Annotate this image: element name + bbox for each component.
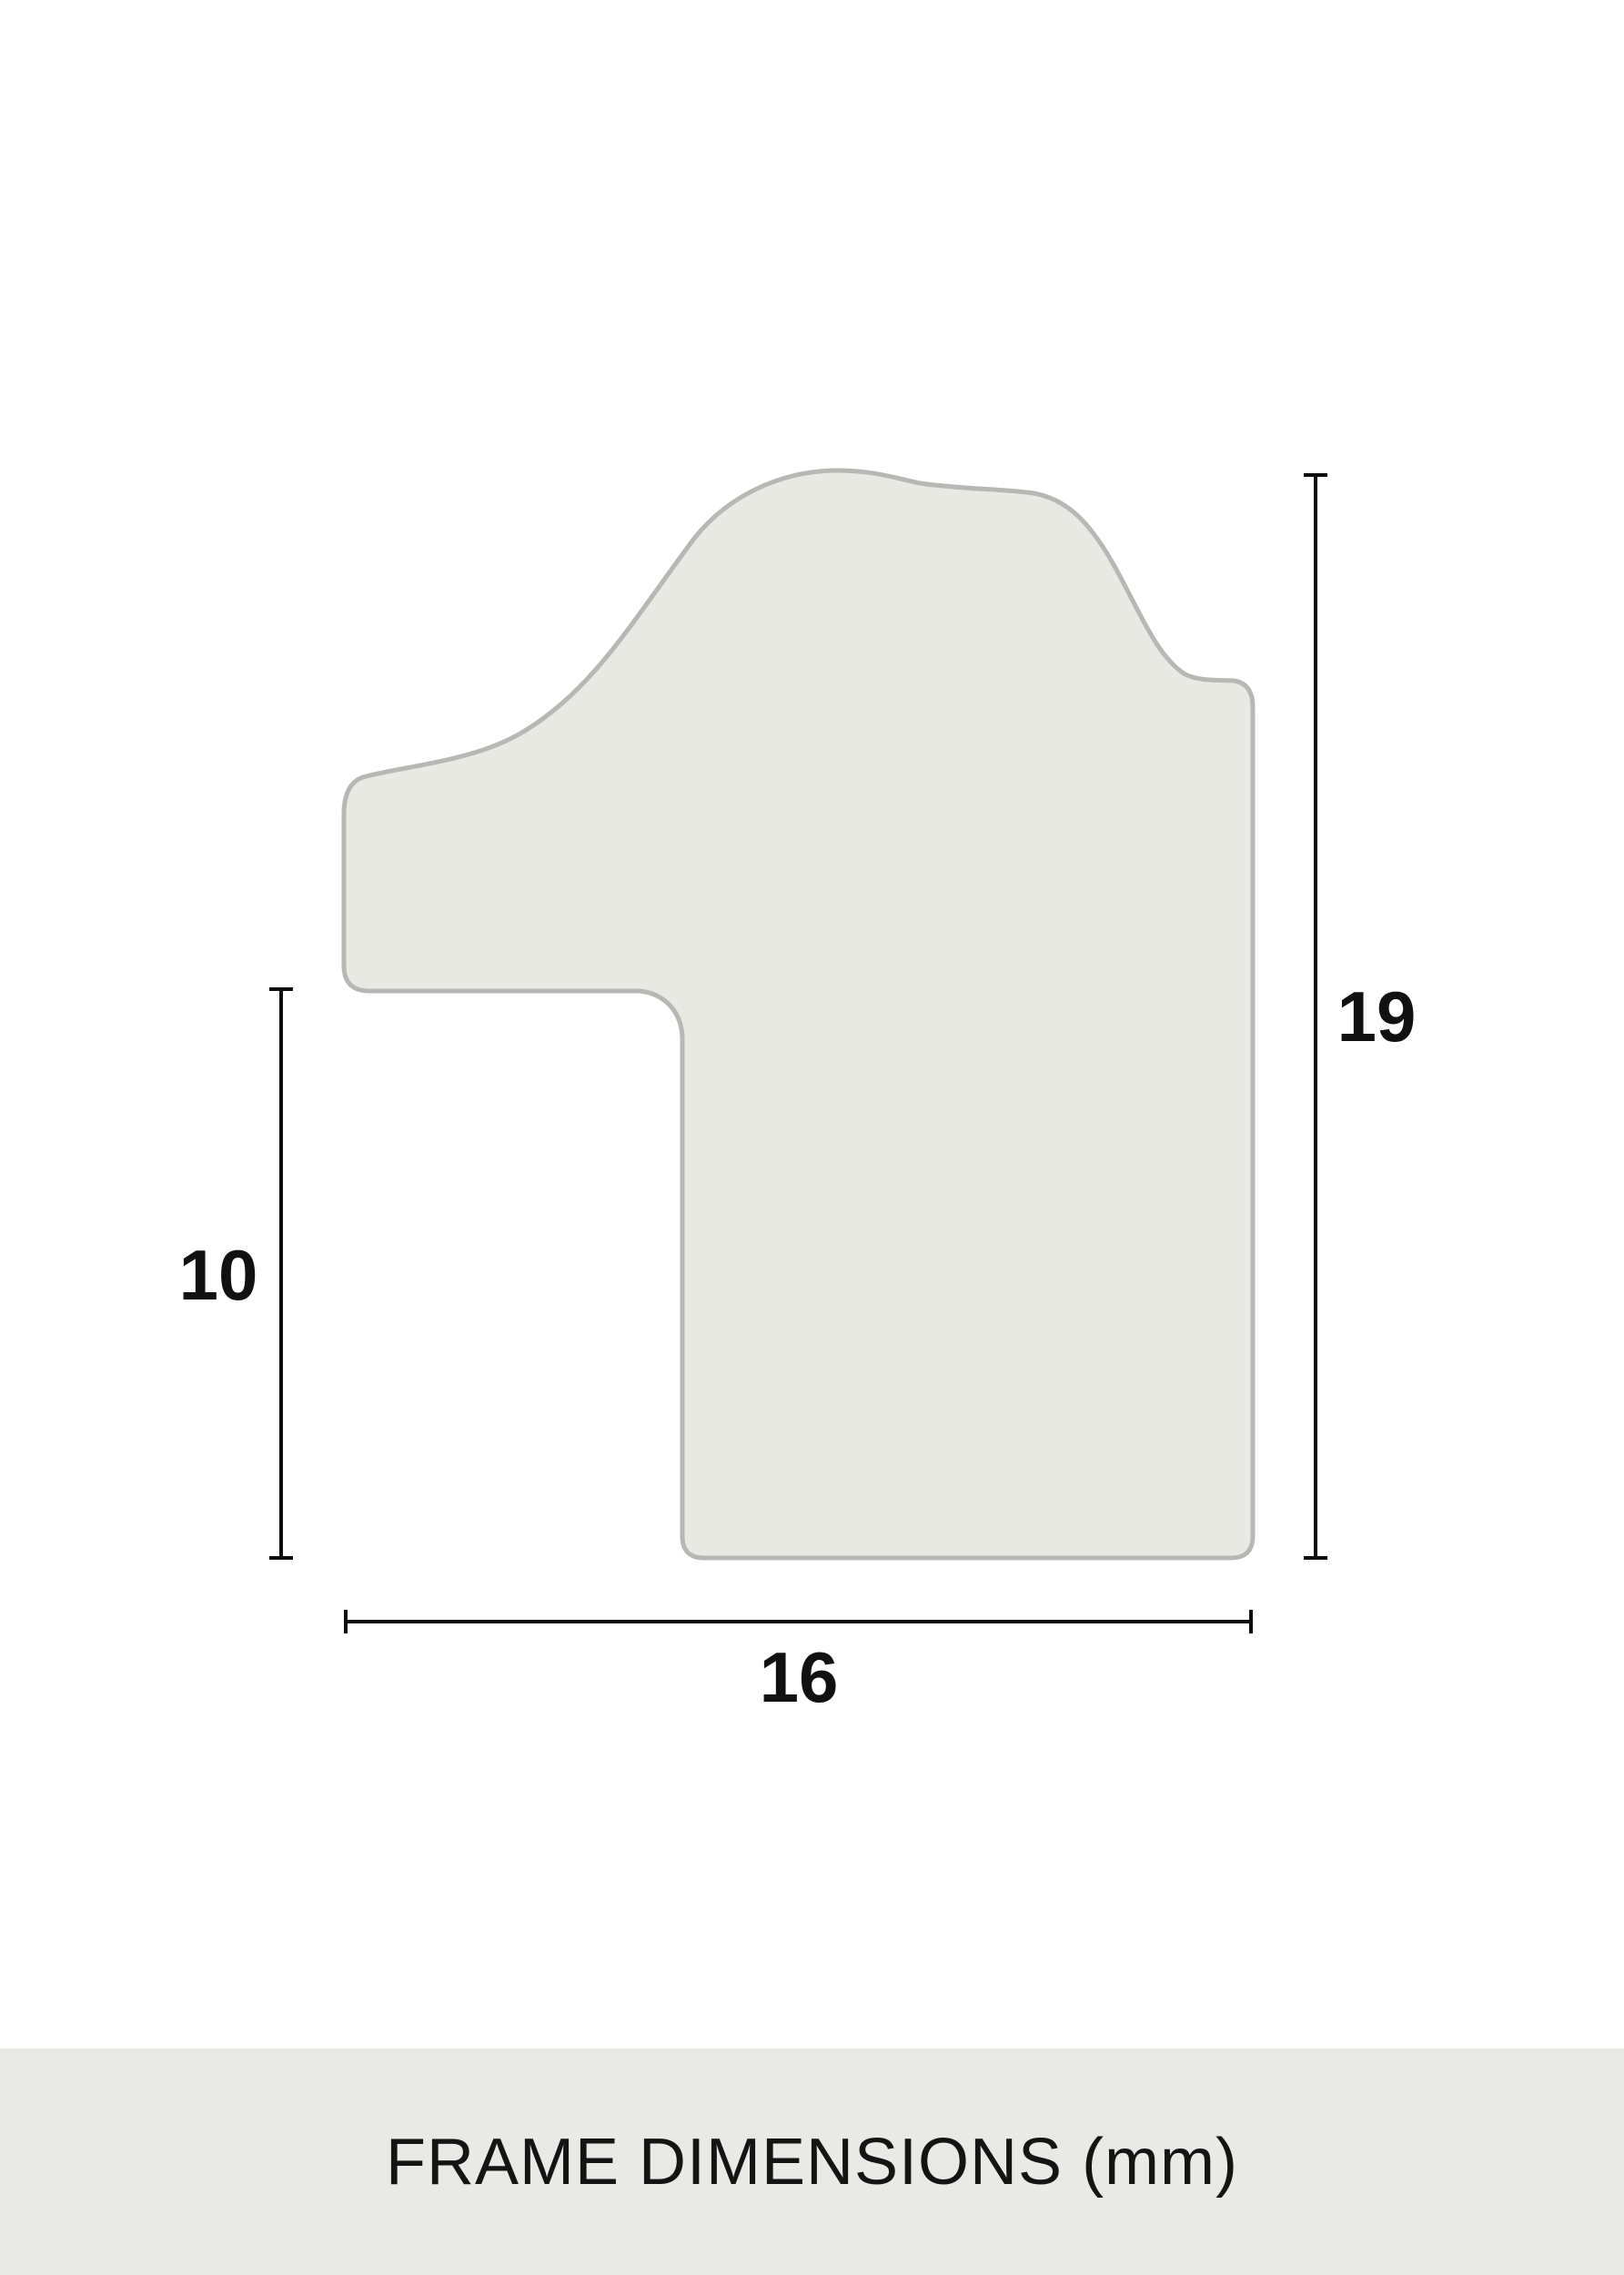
dimension-right-label: 19: [1337, 976, 1417, 1057]
dimension-left-label: 10: [179, 1235, 258, 1315]
moulding-profile-diagram: 10 19 16: [0, 0, 1624, 2048]
frame-dimensions-page: 10 19 16 FRAME DIMENSIONS (mm): [0, 0, 1624, 2275]
dimension-bottom-label: 16: [760, 1637, 839, 1717]
footer-bar: FRAME DIMENSIONS (mm): [0, 2048, 1624, 2275]
moulding-profile-shape: [344, 470, 1253, 1558]
dimension-left-height: 10: [179, 989, 293, 1558]
dimension-right-height: 19: [1304, 475, 1416, 1558]
dimension-bottom-width: 16: [346, 1610, 1251, 1717]
footer-caption: FRAME DIMENSIONS (mm): [386, 2125, 1238, 2199]
